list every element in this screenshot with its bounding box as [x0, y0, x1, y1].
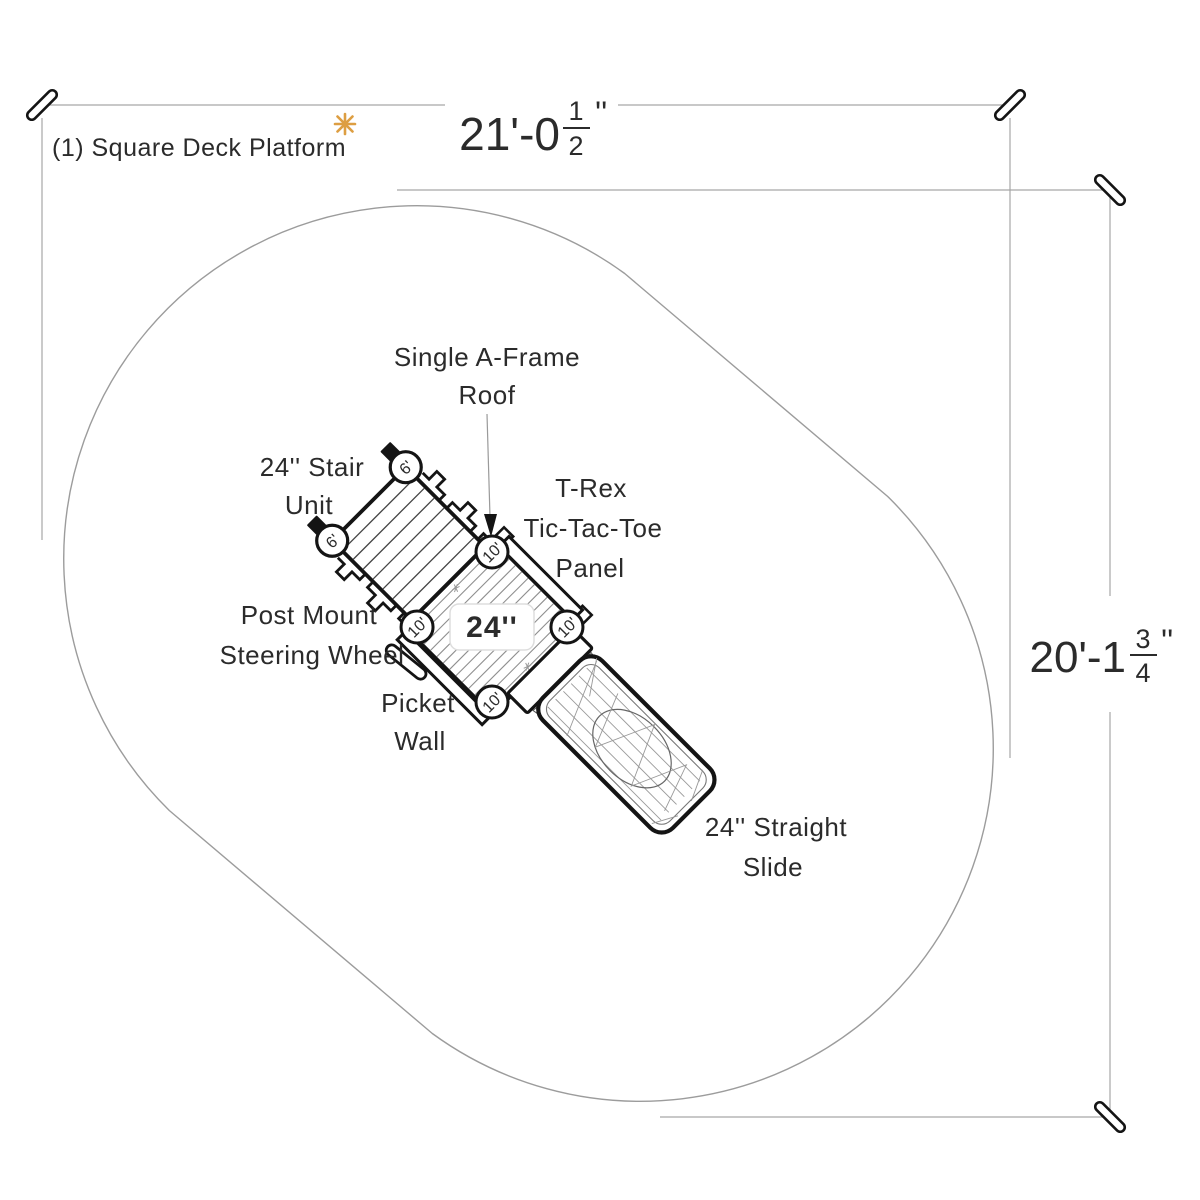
site-plan-page: 6' 6' 10' 10' 10' 10' 24'' Single A-Fram…	[0, 0, 1200, 1200]
callout-stair-line2: Unit	[285, 490, 334, 520]
slide-body	[532, 650, 722, 840]
callout-trex-line2: Tic-Tac-Toe	[524, 513, 663, 543]
leader-arrowhead-icon	[484, 514, 497, 537]
roof-leader-arrow	[484, 414, 497, 537]
callout-steering-line2: Steering Wheel	[220, 640, 405, 670]
callout-trex-line3: Panel	[556, 553, 625, 583]
site-plan-canvas: 6' 6' 10' 10' 10' 10' 24'' Single A-Fram…	[0, 0, 1200, 1200]
dimension-right-unit: ''	[1161, 623, 1173, 659]
dimension-right-whole: 20'-1	[1030, 633, 1126, 682]
dimension-right-frac-den: 4	[1135, 658, 1150, 688]
page-title: (1) Square Deck Platform	[52, 134, 346, 162]
callout-picket-line2: Wall	[394, 726, 446, 756]
dimension-label-top: 21'-0 1 2 ''	[459, 95, 607, 161]
deck-size-label: 24''	[450, 604, 534, 650]
callout-roof-line2: Roof	[459, 380, 516, 410]
callout-trex-line1: T-Rex	[555, 473, 627, 503]
dimension-top-frac-num: 1	[568, 96, 583, 126]
dimension-label-right: 20'-1 3 4 ''	[1030, 623, 1174, 688]
dimension-top-unit: ''	[595, 95, 607, 131]
dimension-top-whole: 21'-0	[459, 108, 560, 160]
callout-steering-line1: Post Mount	[241, 600, 378, 630]
dimension-top-frac-den: 2	[568, 131, 583, 161]
leader-line	[487, 414, 490, 517]
title-asterisk-icon	[335, 114, 355, 134]
deck-size-label-text: 24''	[466, 611, 518, 644]
callout-slide-line1: 24'' Straight	[705, 812, 847, 842]
callout-picket-line1: Picket	[381, 688, 455, 718]
callout-roof-line1: Single A-Frame	[394, 342, 580, 372]
callout-slide-line2: Slide	[743, 852, 803, 882]
dimension-right-frac-num: 3	[1135, 624, 1150, 654]
callout-stair-line1: 24'' Stair	[260, 452, 365, 482]
